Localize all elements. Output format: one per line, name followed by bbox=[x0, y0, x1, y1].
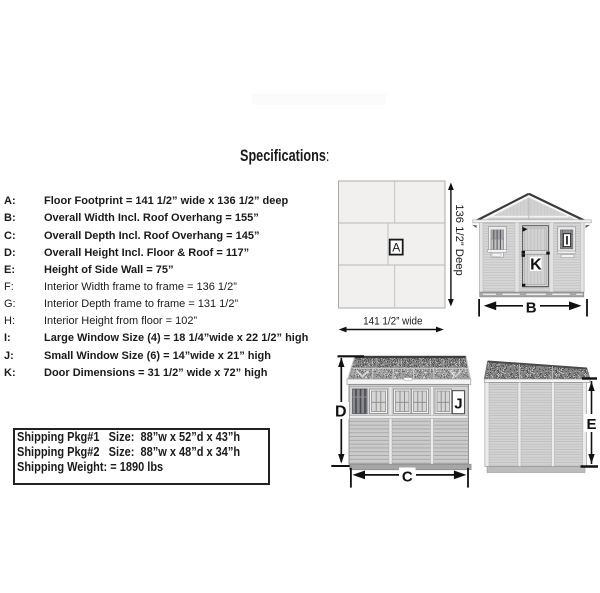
svg-text:B: B bbox=[526, 299, 537, 316]
svg-text:J: J bbox=[454, 396, 462, 413]
svg-text:C: C bbox=[402, 468, 413, 485]
svg-text:136 1/2” Deep: 136 1/2” Deep bbox=[453, 204, 465, 276]
svg-text:E: E bbox=[586, 416, 596, 433]
svg-text:A: A bbox=[392, 241, 400, 255]
svg-text:I: I bbox=[565, 235, 568, 247]
svg-text:K: K bbox=[530, 257, 542, 274]
svg-text:141 1/2” wide: 141 1/2” wide bbox=[363, 316, 423, 327]
svg-text:D: D bbox=[335, 403, 347, 420]
